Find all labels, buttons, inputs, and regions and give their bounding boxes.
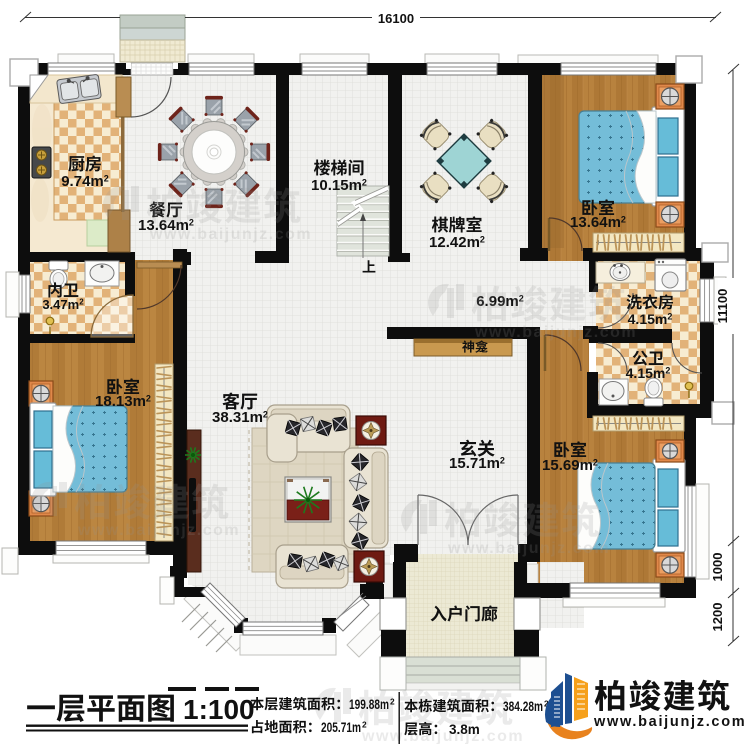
svg-text:205.71m: 205.71m	[321, 720, 361, 735]
svg-text:2: 2	[390, 697, 395, 707]
svg-text:10.15m2: 10.15m2	[311, 177, 367, 194]
svg-text:1000: 1000	[710, 553, 725, 582]
svg-text:1:100: 1:100	[183, 694, 255, 725]
svg-text:3.8m: 3.8m	[449, 722, 480, 737]
svg-text:15.69m2: 15.69m2	[542, 457, 598, 474]
svg-text:2: 2	[362, 720, 367, 730]
svg-text:18.13m2: 18.13m2	[95, 393, 151, 410]
svg-text:12.42m2: 12.42m2	[429, 234, 485, 251]
svg-text:38.31m2: 38.31m2	[212, 409, 268, 426]
svg-text:1200: 1200	[710, 603, 725, 632]
svg-text:13.64m2: 13.64m2	[570, 214, 626, 231]
svg-text:11100: 11100	[715, 289, 730, 324]
svg-text:www.baijunjz.com: www.baijunjz.com	[593, 714, 746, 730]
svg-text:9.74m2: 9.74m2	[61, 173, 109, 190]
svg-text:3.47m2: 3.47m2	[42, 297, 84, 312]
svg-text:4.15m2: 4.15m2	[626, 365, 671, 381]
svg-text:16100: 16100	[378, 11, 414, 26]
svg-text:384.28m: 384.28m	[503, 699, 543, 714]
svg-text:15.71m2: 15.71m2	[449, 455, 505, 472]
svg-text:199.88m: 199.88m	[349, 697, 389, 712]
